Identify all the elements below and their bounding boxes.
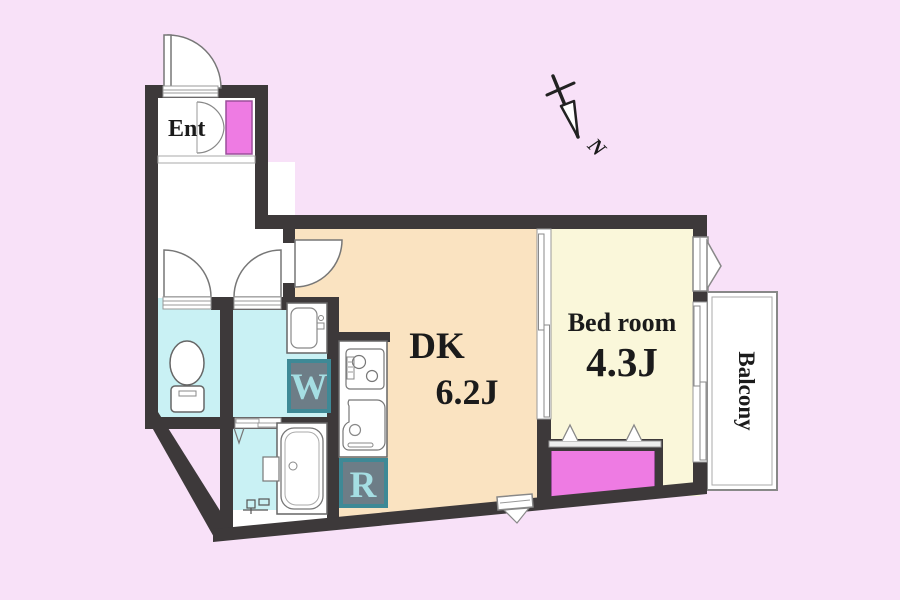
kitchen-counter <box>339 341 387 457</box>
wall-main-top <box>255 215 707 229</box>
washroom-door-sill <box>234 297 281 309</box>
balcony: Balcony <box>707 292 777 490</box>
bedroom-area-label: 4.3J <box>586 339 658 385</box>
washer-box: W <box>287 359 331 413</box>
wall-entrance-right <box>255 85 268 229</box>
bath-step <box>263 457 279 481</box>
wall-outer-left <box>145 85 158 419</box>
bedroom-label: Bed room <box>568 308 677 337</box>
toilet-door-sill <box>163 297 211 309</box>
entrance-label: Ent <box>168 116 205 142</box>
wall-closet-right <box>655 439 663 496</box>
partition-sliding-door <box>537 229 551 419</box>
refrigerator-label: R <box>350 465 378 506</box>
wall-dkdoor-post-top <box>283 229 295 243</box>
balcony-label: Balcony <box>734 351 759 431</box>
balcony-sliding-window <box>693 302 707 462</box>
entrance-door-sill <box>163 86 218 97</box>
entrance-door-leaf <box>164 35 171 88</box>
floor-plan: Balcony <box>0 0 900 600</box>
stove <box>346 349 384 389</box>
toilet-fixture <box>170 341 204 412</box>
kitchen-sink <box>343 400 385 450</box>
wall-toilet-divider <box>220 310 233 420</box>
refrigerator-box: R <box>339 458 388 508</box>
wall-bath-left <box>220 429 233 528</box>
entrance-step <box>158 156 255 163</box>
wall-partition-lower <box>537 415 551 499</box>
dk-label: DK <box>409 326 465 367</box>
dk-area-label: 6.2J <box>436 372 499 412</box>
washer-label: W <box>291 367 328 408</box>
shoe-cabinet <box>226 101 252 154</box>
vanity-sink <box>287 303 327 353</box>
